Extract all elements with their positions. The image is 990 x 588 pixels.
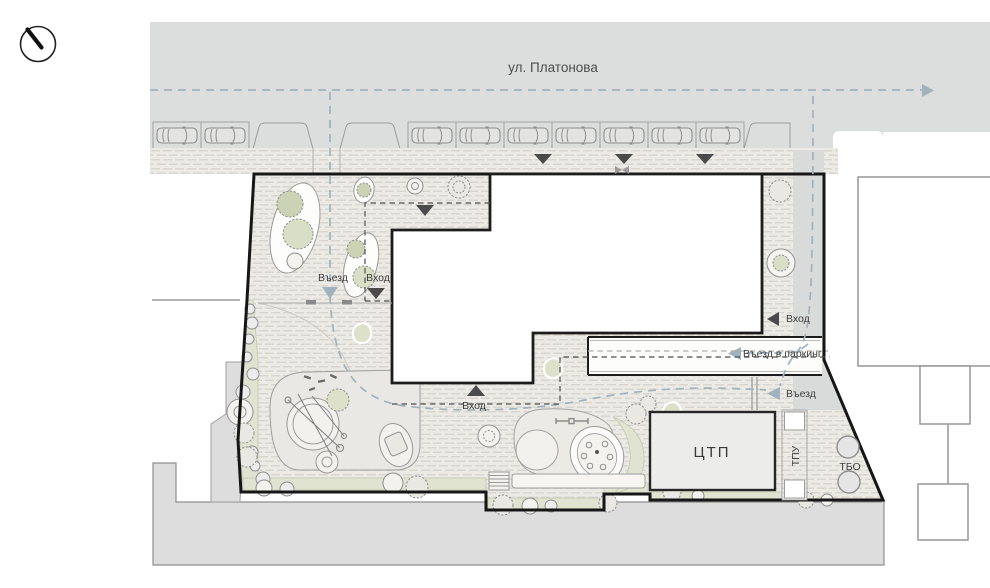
- playground: [270, 370, 420, 473]
- neighbor-building-east: [858, 177, 990, 366]
- car-icon: [652, 127, 692, 145]
- neighbor-building-se: [918, 484, 968, 540]
- car-icon: [508, 127, 548, 145]
- entry-walk-west-label: Вход: [366, 272, 390, 284]
- tree: [357, 183, 371, 197]
- car-icon: [412, 127, 452, 145]
- tpu-box: [785, 412, 805, 430]
- entry-parking-label: Въезд в паркинг: [743, 348, 822, 360]
- bush: [544, 358, 562, 378]
- tbo-container: [837, 436, 859, 458]
- car-icon: [205, 127, 245, 145]
- gate-marker: [342, 300, 352, 305]
- walkway: [512, 474, 645, 488]
- tree: [407, 178, 423, 194]
- bush: [353, 323, 371, 343]
- entry-drive-west-label: Въезд: [318, 272, 348, 284]
- sidewalk: [150, 148, 838, 174]
- car-icon: [604, 127, 644, 145]
- street-name-label: ул. Платонова: [508, 60, 598, 75]
- tree: [769, 180, 791, 202]
- north-arrow-icon: [21, 27, 56, 62]
- entry-drive-se-label: Въезд: [786, 388, 816, 400]
- street-edge-right: [883, 132, 990, 178]
- tpu-box: [785, 480, 805, 498]
- tree: [448, 176, 470, 198]
- tbo-label: ТБО: [839, 461, 860, 473]
- curb-extension: [340, 123, 400, 149]
- neighbor-building-east-wing: [920, 366, 970, 424]
- stairs: [489, 472, 509, 490]
- entry-walk-south-label: Вход: [462, 400, 486, 412]
- tree: [287, 253, 303, 269]
- car-icon: [460, 127, 500, 145]
- car-icon: [556, 127, 596, 145]
- tree: [626, 404, 646, 424]
- driveway-notch: [833, 131, 883, 177]
- tbo-container: [838, 471, 860, 493]
- car-icon: [157, 127, 197, 145]
- tree: [478, 425, 500, 447]
- site-plan: ЦТП ТПУ ТБО: [0, 0, 990, 588]
- tpu-strip: ТПУ: [782, 410, 807, 500]
- seating-center: [595, 450, 599, 454]
- car-icon: [700, 127, 740, 145]
- tree: [347, 240, 365, 258]
- tbo-area: ТБО: [837, 436, 861, 493]
- play-circle: [316, 451, 338, 473]
- green-strip-south: [243, 478, 486, 490]
- lawn-inner: [516, 430, 558, 470]
- tree: [283, 219, 313, 249]
- tree: [277, 191, 303, 217]
- tpu-label: ТПУ: [790, 445, 802, 466]
- ctp-label: ЦТП: [693, 444, 730, 461]
- tree: [773, 255, 789, 271]
- curb-extension: [744, 123, 790, 149]
- entry-walk-east-label: Вход: [786, 313, 810, 325]
- south-exit: [489, 472, 645, 490]
- tree: [327, 389, 349, 411]
- site-plan-drawing: ЦТП ТПУ ТБО: [0, 0, 990, 588]
- street: [150, 22, 990, 178]
- curb-extension: [253, 123, 313, 149]
- gate-marker: [306, 300, 316, 305]
